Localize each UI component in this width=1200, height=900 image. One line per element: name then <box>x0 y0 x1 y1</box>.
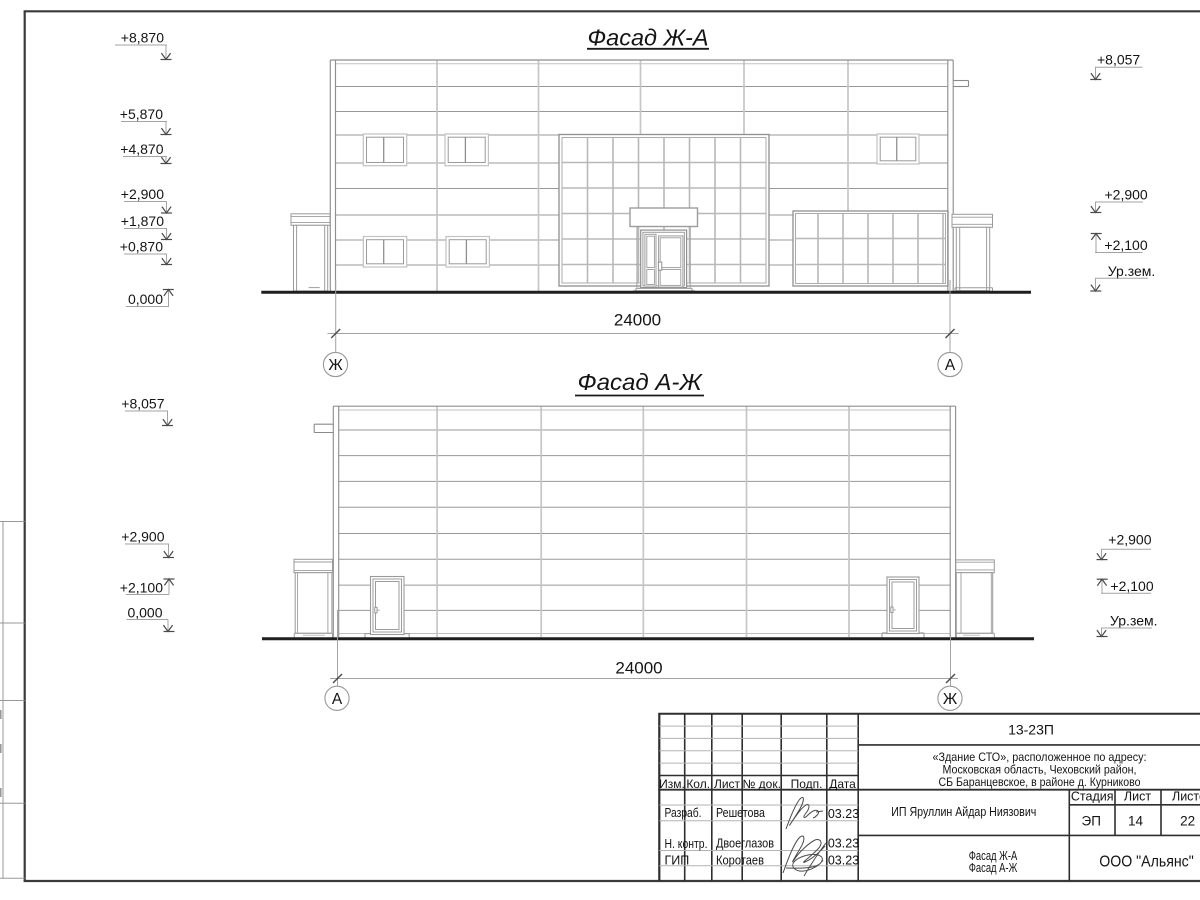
svg-text:+2,900: +2,900 <box>121 529 164 545</box>
svg-text:Дата: Дата <box>829 777 856 791</box>
svg-text:13-23П: 13-23П <box>1008 722 1054 738</box>
svg-text:Н. контр.: Н. контр. <box>665 837 708 851</box>
svg-text:+8,870: +8,870 <box>121 30 164 46</box>
svg-text:Коротаев: Коротаев <box>716 853 764 867</box>
svg-text:+1,870: +1,870 <box>121 213 164 229</box>
svg-text:А: А <box>332 691 343 708</box>
svg-text:Листов: Листов <box>1172 790 1200 804</box>
svg-text:Фасад Ж-А: Фасад Ж-А <box>588 25 709 51</box>
svg-text:Лист: Лист <box>714 777 741 791</box>
svg-text:Ж: Ж <box>943 691 958 708</box>
svg-text:№ док.: № док. <box>742 777 780 791</box>
svg-text:22: 22 <box>1180 813 1195 828</box>
svg-text:+2,900: +2,900 <box>1105 186 1148 202</box>
svg-text:+2,100: +2,100 <box>120 580 163 596</box>
svg-text:03.23: 03.23 <box>828 807 859 821</box>
svg-text:+2,100: +2,100 <box>1110 578 1153 594</box>
svg-text:Подп.: Подп. <box>791 777 823 791</box>
svg-text:0,000: 0,000 <box>127 605 162 621</box>
svg-text:Изм.: Изм. <box>659 777 685 791</box>
svg-text:ЭП: ЭП <box>1081 813 1100 828</box>
svg-text:Стадия: Стадия <box>1071 790 1114 804</box>
svg-text:+2,100: +2,100 <box>1104 237 1147 253</box>
svg-text:+0,870: +0,870 <box>120 239 163 255</box>
svg-text:+4,870: +4,870 <box>120 141 163 157</box>
svg-text:ГИП: ГИП <box>665 853 690 867</box>
svg-text:СБ Баранцевское, в районе д. К: СБ Баранцевское, в районе д. Курниково <box>939 775 1141 789</box>
svg-text:+2,900: +2,900 <box>121 186 164 202</box>
svg-text:03.23: 03.23 <box>828 853 859 867</box>
svg-text:03.23: 03.23 <box>828 837 859 851</box>
svg-text:Решетова: Решетова <box>716 806 765 820</box>
svg-text:14: 14 <box>1128 813 1144 828</box>
svg-text:А: А <box>945 357 956 374</box>
svg-text:Разраб.: Разраб. <box>665 806 702 820</box>
svg-text:+8,057: +8,057 <box>1097 52 1140 68</box>
svg-text:0,000: 0,000 <box>128 291 163 307</box>
svg-text:Ж: Ж <box>328 357 343 374</box>
svg-text:Двоеглазов: Двоеглазов <box>716 837 774 851</box>
svg-text:Ур.зем.: Ур.зем. <box>1110 613 1158 629</box>
svg-text:Фасад А-Ж: Фасад А-Ж <box>578 369 703 395</box>
svg-text:24000: 24000 <box>614 311 661 330</box>
svg-text:Ур.зем.: Ур.зем. <box>1108 263 1156 279</box>
svg-text:ООО "Альянс": ООО "Альянс" <box>1099 853 1194 870</box>
svg-text:+8,057: +8,057 <box>121 396 164 412</box>
svg-text:Фасад А-Ж: Фасад А-Ж <box>969 861 1018 875</box>
svg-text:+2,900: +2,900 <box>1108 532 1151 548</box>
svg-text:Кол.: Кол. <box>686 777 710 791</box>
svg-text:24000: 24000 <box>615 659 662 678</box>
svg-text:ИП Яруллин Айдар Ниязович: ИП Яруллин Айдар Ниязович <box>891 805 1036 819</box>
svg-text:+5,870: +5,870 <box>120 106 163 122</box>
svg-text:Лист: Лист <box>1124 790 1151 804</box>
